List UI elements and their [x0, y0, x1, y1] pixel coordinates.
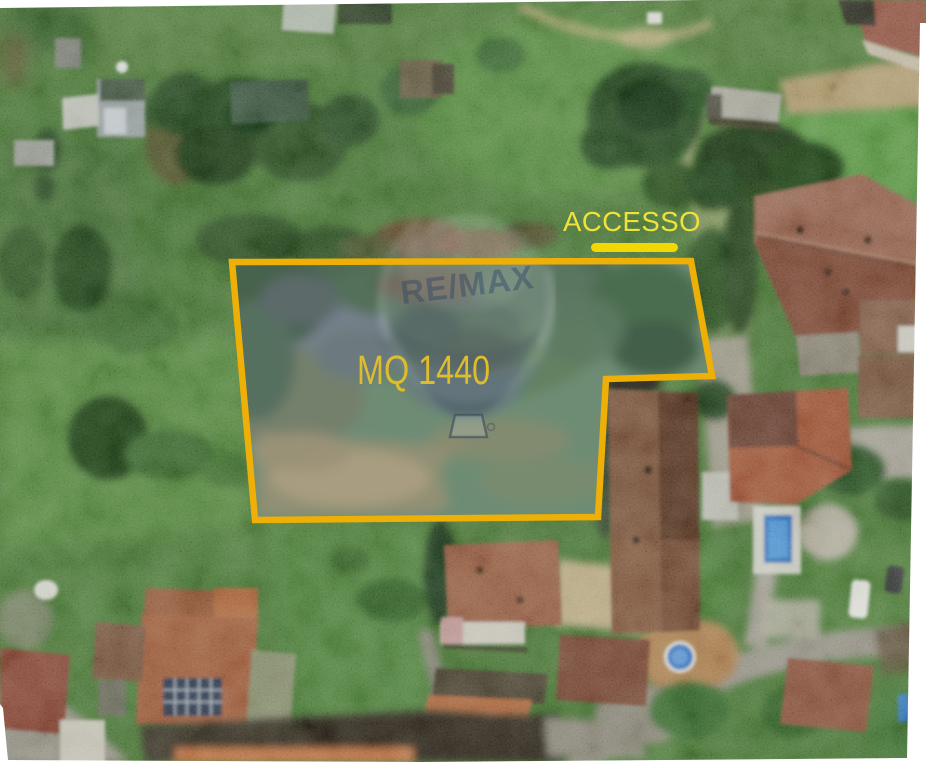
svg-text:ACCESSO: ACCESSO [563, 206, 701, 237]
svg-text:MQ 1440: MQ 1440 [357, 347, 490, 392]
